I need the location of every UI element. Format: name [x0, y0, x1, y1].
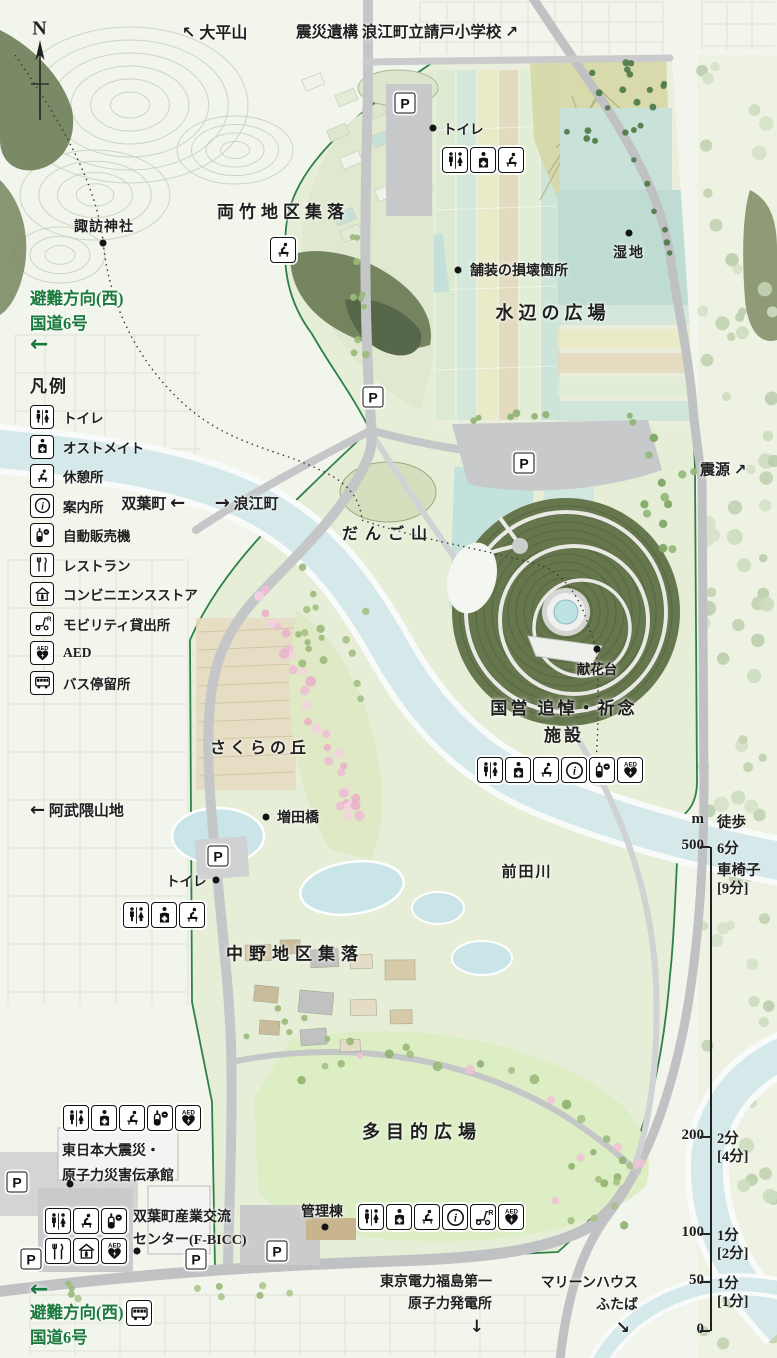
scale-bar-tick [700, 1330, 710, 1332]
info-icon: i [442, 1204, 468, 1230]
label-waterside-plaza: 水辺の広場 [496, 299, 611, 325]
label-denshokan: 東日本大震災・ 原子力災害伝承館 [62, 1139, 174, 1189]
restaurant-icon [30, 553, 54, 577]
scale-bar-text: [1分] [717, 1290, 748, 1311]
scale-bar-text: 50 [658, 1272, 704, 1289]
scale-bar-tick [700, 1233, 710, 1235]
legend-item-label: トイレ [63, 407, 104, 427]
label-multipurpose-plaza: 多目的広場 [362, 1118, 482, 1144]
legend-item: 休憩所 [30, 464, 198, 488]
facility-icons-bus-stop [126, 1300, 152, 1326]
info-icon: i [561, 757, 587, 783]
aed-icon: AED [498, 1204, 524, 1230]
arrow-right-icon: → [215, 493, 230, 514]
arrow-left-icon: ← [30, 336, 124, 354]
label-toilet-top: トイレ [443, 118, 484, 138]
toilet-icon [30, 405, 54, 429]
legend-item-label: 自動販売機 [63, 525, 131, 545]
label-epicenter: 震源 ↗ [700, 459, 746, 480]
vending-icon [589, 757, 615, 783]
parking-marker: P [363, 387, 384, 408]
facility-icons-memorial: iAED [477, 757, 643, 783]
rest-icon [498, 147, 524, 173]
mobility-icon: R [30, 612, 54, 636]
convenience-icon [73, 1238, 99, 1264]
facility-icons-water-plaza [442, 147, 524, 173]
legend-item: AEDAED [30, 641, 198, 665]
label-ohirayama: ↖ 大平山 [182, 19, 247, 43]
legend-item-label: 休憩所 [63, 466, 104, 486]
ostomate-icon [151, 902, 177, 928]
bus-icon [30, 671, 54, 695]
svg-text:R: R [46, 616, 51, 623]
restaurant-icon [45, 1238, 71, 1264]
arrow-down-right-icon: ↘ [528, 1317, 638, 1339]
vending-icon [147, 1105, 173, 1131]
facility-icons-kanritou: iRAED [358, 1204, 524, 1230]
legend-item: Rモビリティ貸出所 [30, 612, 198, 636]
label-flower-stand: 献花台 [577, 658, 618, 678]
rest-icon [270, 237, 296, 263]
poi-dot [134, 1248, 141, 1255]
legend-item-label: AED [63, 645, 92, 661]
scale-bar-tick [700, 1136, 710, 1138]
mobility-icon: R [470, 1204, 496, 1230]
poi-dot [263, 814, 270, 821]
legend-item-label: バス停留所 [63, 673, 131, 693]
compass-label: N [32, 18, 47, 41]
svg-text:i: i [453, 1212, 457, 1224]
label-suwa-shrine: 諏訪神社 [74, 216, 134, 236]
legend-title: 凡例 [30, 372, 198, 397]
rest-icon [414, 1204, 440, 1230]
aed-icon: AED [101, 1238, 127, 1264]
rest-icon [533, 757, 559, 783]
label-toilet-sakura: トイレ [166, 870, 207, 890]
legend-item: コンビニエンスストア [30, 582, 198, 606]
scale-bar-text: 100 [658, 1224, 704, 1241]
arrow-up-left-icon: ↖ [182, 23, 195, 42]
toilet-icon [442, 147, 468, 173]
facility-icons-ryotake-rest [270, 237, 296, 263]
legend-item: 自動販売機 [30, 523, 198, 547]
ostomate-icon [470, 147, 496, 173]
rest-icon [119, 1105, 145, 1131]
legend-item: i案内所 [30, 494, 198, 518]
vending-icon [30, 523, 54, 547]
facility-icons-fbicc-row1 [45, 1208, 127, 1234]
poi-dot [67, 1181, 74, 1188]
label-sakura-hill: さくらの丘 [210, 734, 310, 758]
label-wetland: 湿地 [613, 242, 645, 262]
label-pavement-damage: 舗装の損壊箇所 [470, 260, 568, 280]
toilet-icon [45, 1208, 71, 1234]
parking-marker: P [7, 1172, 28, 1193]
rest-icon [73, 1208, 99, 1234]
svg-text:R: R [488, 1209, 493, 1216]
parking-marker: P [208, 846, 229, 867]
legend: 凡例 トイレオストメイト休憩所i案内所自動販売機レストランコンビニエンスストアR… [30, 372, 198, 700]
convenience-icon [30, 582, 54, 606]
arrow-up-right-icon: ↗ [505, 23, 518, 41]
evacuation-direction-bottom: ← 避難方向(西) 国道6号 [30, 1280, 124, 1350]
label-masuda-bridge: 増田橋 [277, 807, 319, 827]
rest-icon [179, 902, 205, 928]
ostomate-icon [386, 1204, 412, 1230]
parking-marker: P [21, 1249, 42, 1270]
label-abukuma: ← 阿武隈山地 [30, 800, 124, 821]
legend-item-label: 案内所 [63, 496, 104, 516]
scale-bar-tick [700, 1281, 710, 1283]
scale-bar-text: [2分] [717, 1242, 748, 1263]
bus-icon [126, 1300, 152, 1326]
scale-bar-text: m [658, 811, 704, 828]
legend-item: トイレ [30, 405, 198, 429]
ostomate-icon [30, 435, 54, 459]
toilet-icon [63, 1105, 89, 1131]
scale-bar-text: 200 [658, 1127, 704, 1144]
scale-bar-tick [700, 846, 710, 848]
parking-marker: P [514, 453, 535, 474]
scale-bar-text: 6分 [717, 837, 739, 858]
arrow-up-right-icon: ↗ [734, 461, 747, 479]
svg-text:i: i [572, 765, 576, 777]
label-fbicc: 双葉町産業交流 センター(F-BICC) [133, 1206, 247, 1252]
poi-dot [213, 877, 220, 884]
label-national-memorial: 国営 追悼・祈念 施設 [488, 695, 640, 749]
arrow-down-icon: ↓ [362, 1316, 492, 1338]
parking-marker: P [395, 93, 416, 114]
facility-icons-fbicc-row2: AED [45, 1238, 127, 1264]
legend-item: オストメイト [30, 435, 198, 459]
facility-icons-sakura [123, 902, 205, 928]
legend-item: レストラン [30, 553, 198, 577]
label-ryotake-district: 両竹地区集落 [217, 198, 349, 223]
toilet-icon [123, 902, 149, 928]
aed-icon: AED [175, 1105, 201, 1131]
toilet-icon [477, 757, 503, 783]
label-admin-building: 管理棟 [301, 1201, 343, 1221]
arrow-left-icon: ← [30, 1280, 124, 1300]
poi-dot [100, 240, 107, 247]
svg-text:i: i [41, 501, 44, 512]
poi-dot [594, 646, 601, 653]
label-marine-house: マリーンハウス ふたば ↘ [528, 1273, 638, 1339]
parking-marker: P [267, 1241, 288, 1262]
scale-bar-line [710, 847, 712, 1331]
aed-icon: AED [617, 757, 643, 783]
scale-bar-text: [9分] [717, 877, 748, 898]
aed-icon: AED [30, 641, 54, 665]
legend-item-label: コンビニエンスストア [63, 584, 198, 604]
poi-dot [626, 230, 633, 237]
scale-bar: m徒歩5006分車椅子[9分]2002分[4分]1001分[2分]501分[1分… [658, 815, 777, 1355]
rest-icon [30, 464, 54, 488]
ostomate-icon [91, 1105, 117, 1131]
toilet-icon [358, 1204, 384, 1230]
scale-bar-text: 0 [658, 1321, 704, 1338]
scale-bar-text: [4分] [717, 1145, 748, 1166]
ostomate-icon [505, 757, 531, 783]
label-tepco-plant: 東京電力福島第一 原子力発電所 ↓ [362, 1272, 492, 1338]
label-nakano-district: 中野地区集落 [226, 940, 364, 965]
label-maeda-river: 前田川 [501, 861, 552, 882]
label-ukedo-school: 震災遺構 浪江町立請戸小学校 ↗ [296, 20, 518, 42]
legend-item-label: オストメイト [63, 437, 144, 457]
parking-marker: P [186, 1249, 207, 1270]
vending-icon [101, 1208, 127, 1234]
legend-item-label: レストラン [63, 555, 131, 575]
poi-dot [322, 1224, 329, 1231]
arrow-left-icon: ← [30, 800, 45, 821]
info-icon: i [30, 494, 54, 518]
evacuation-direction-top: 避難方向(西) 国道6号 ← [30, 286, 124, 354]
label-dango-hill: だんご山 [342, 520, 434, 544]
park-guide-map: N ↖ 大平山 震災遺構 浪江町立請戸小学校 ↗ 避難方向(西) 国道6号 ← … [0, 0, 777, 1358]
scale-bar-text: 徒歩 [717, 811, 746, 832]
facility-icons-denshokan: AED [63, 1105, 201, 1131]
poi-dot [430, 125, 437, 132]
legend-item: バス停留所 [30, 671, 198, 695]
legend-item-label: モビリティ貸出所 [63, 614, 170, 634]
scale-bar-text: 500 [658, 837, 704, 854]
poi-dot [455, 267, 462, 274]
